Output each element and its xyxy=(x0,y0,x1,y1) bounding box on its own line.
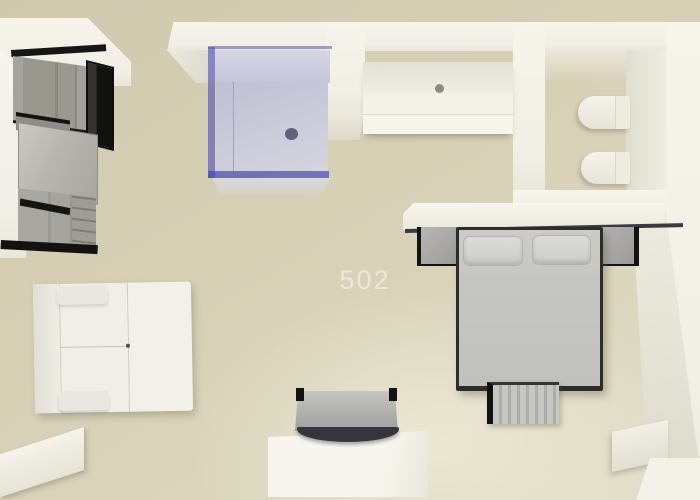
tv-mount-post-right xyxy=(389,388,397,401)
bidet xyxy=(581,152,630,184)
pillow-right xyxy=(532,235,591,265)
shower-glass-top-edge xyxy=(208,46,332,49)
bidet-base xyxy=(615,152,630,184)
shower-glass-left-panel xyxy=(208,47,215,178)
kitchen-handle-trim xyxy=(20,199,70,216)
bathtub xyxy=(363,62,513,134)
sofa-chaise-section xyxy=(127,282,193,412)
wc-right-wall-face xyxy=(626,50,668,195)
shower-base-face xyxy=(210,178,332,195)
shower-tray-edge xyxy=(233,82,234,174)
wall-pillar-face xyxy=(325,111,365,140)
bottom-left-wall xyxy=(0,427,84,497)
tv-back-panel xyxy=(295,391,398,431)
nightstand-left xyxy=(417,227,460,266)
sofa-button-detail xyxy=(126,344,130,348)
floor-plan-render: 502 xyxy=(0,0,700,500)
bathtub-front-lip xyxy=(363,114,513,134)
shower-drain xyxy=(285,128,298,140)
pillow-left xyxy=(463,236,523,266)
foot-bench xyxy=(487,382,559,424)
toilet-tank xyxy=(615,96,630,129)
sofa xyxy=(33,282,192,414)
sofa-armrest-bottom xyxy=(59,391,109,411)
double-bed xyxy=(456,227,603,391)
sofa-seat-seam xyxy=(60,346,128,348)
bathtub-drain xyxy=(435,84,444,93)
wc-left-wall xyxy=(513,22,545,192)
shower-glass-front-panel xyxy=(208,171,329,178)
unit-number-label: 502 xyxy=(335,263,395,297)
toilet xyxy=(578,96,630,129)
tv-mount-post-left xyxy=(296,388,304,401)
shower-wall-face xyxy=(215,50,330,83)
sofa-armrest-top xyxy=(57,285,107,305)
wall-pillar xyxy=(325,22,365,113)
